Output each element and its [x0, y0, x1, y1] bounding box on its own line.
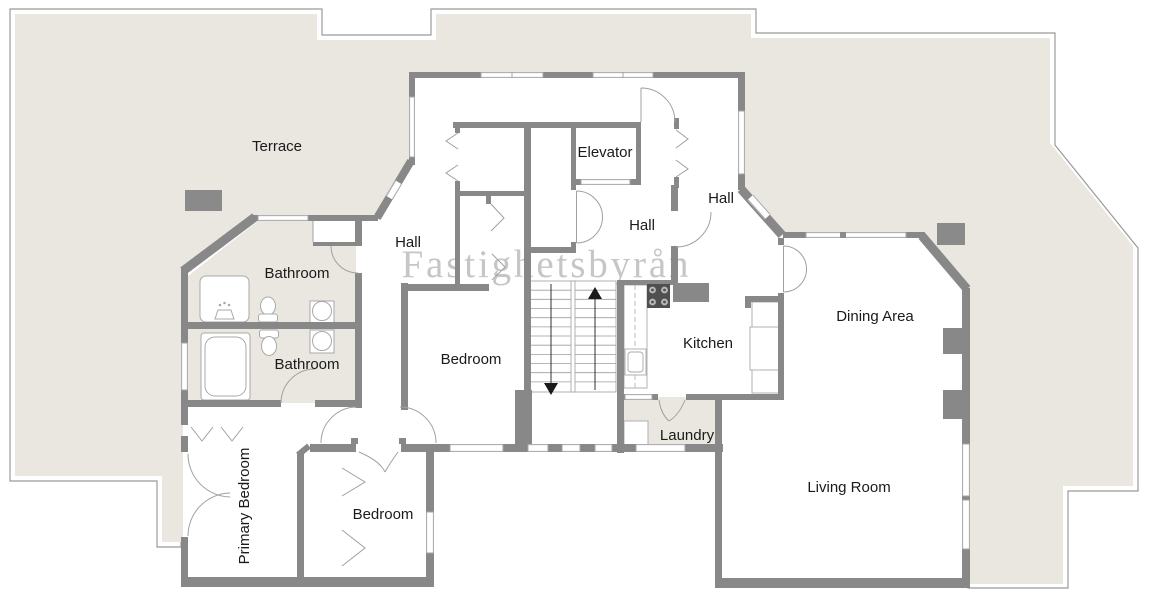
- svg-text:Laundry: Laundry: [660, 427, 715, 444]
- svg-text:Hall: Hall: [708, 190, 734, 207]
- svg-text:Living Room: Living Room: [807, 479, 890, 496]
- svg-text:Hall: Hall: [395, 234, 421, 251]
- svg-text:Bathroom: Bathroom: [264, 265, 329, 282]
- svg-text:Hall: Hall: [629, 217, 655, 234]
- svg-text:Bathroom: Bathroom: [274, 356, 339, 373]
- svg-text:Bedroom: Bedroom: [353, 506, 414, 523]
- svg-text:Elevator: Elevator: [577, 144, 632, 161]
- svg-text:Bedroom: Bedroom: [441, 351, 502, 368]
- svg-text:Kitchen: Kitchen: [683, 335, 733, 352]
- svg-text:Primary Bedroom: Primary Bedroom: [236, 448, 253, 565]
- svg-text:Dining Area: Dining Area: [836, 308, 914, 325]
- svg-text:Terrace: Terrace: [252, 138, 302, 155]
